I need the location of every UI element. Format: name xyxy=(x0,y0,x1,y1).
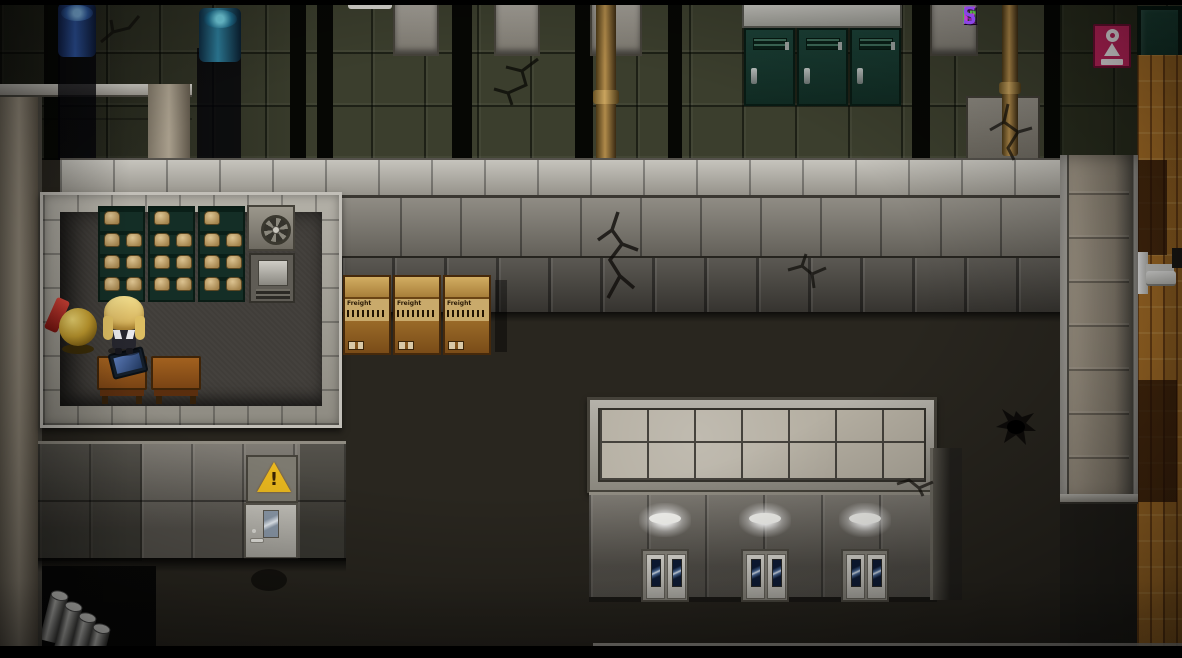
supply-sack xyxy=(226,233,242,247)
supply-sack xyxy=(204,233,220,247)
letterbox-bottom xyxy=(0,646,1182,658)
door-window xyxy=(872,559,882,587)
ac-unit xyxy=(247,205,295,251)
pipe-joint-1 xyxy=(593,90,619,104)
bl-door-window xyxy=(263,510,279,538)
crate-row[interactable]: FreightFreightFreight xyxy=(343,275,495,355)
desk-leg xyxy=(102,396,108,404)
double-door[interactable] xyxy=(841,549,889,602)
locker-latch xyxy=(785,42,789,50)
hall-gap-6 xyxy=(668,0,682,160)
hall-pillar xyxy=(148,84,190,160)
locker-top-shelf xyxy=(742,2,902,28)
drum-cap xyxy=(64,600,84,614)
ac-fan-hub xyxy=(272,226,280,234)
crate-label-text: Freight xyxy=(347,300,371,307)
locker-vent xyxy=(859,38,893,50)
crate-label: Freight xyxy=(345,299,389,321)
supply-sack xyxy=(176,255,192,269)
right-wall-seams xyxy=(1069,155,1129,503)
pipe-joint-2 xyxy=(999,82,1021,94)
restroom-sign-figure xyxy=(1104,43,1120,56)
crate-label: Freight xyxy=(395,299,439,321)
locker-latch xyxy=(891,42,895,50)
restroom-sign-band xyxy=(1101,59,1123,65)
fluorescent-light xyxy=(749,513,781,524)
supply-sack xyxy=(226,255,242,269)
sink-basin xyxy=(1146,271,1176,286)
supply-sack xyxy=(104,277,120,291)
sink[interactable] xyxy=(1138,248,1182,296)
door-window xyxy=(651,559,661,587)
door-window xyxy=(851,559,861,587)
crate-shadow xyxy=(495,280,507,352)
character-hair-left xyxy=(103,316,113,340)
supply-sack xyxy=(154,277,170,291)
door-window xyxy=(772,559,782,587)
left-wall xyxy=(0,97,42,646)
supply-sack xyxy=(104,255,120,269)
right-wall-cap xyxy=(1060,494,1138,504)
drum-cap xyxy=(78,611,98,625)
supply-sack xyxy=(126,255,142,269)
desk-top xyxy=(151,356,201,390)
locker[interactable] xyxy=(797,28,848,106)
right-lower-dark xyxy=(1060,504,1137,646)
freight-crate[interactable]: Freight xyxy=(343,275,391,355)
door-leaf xyxy=(746,554,765,599)
water-barrel-1-top xyxy=(61,5,93,21)
locker-bank[interactable] xyxy=(742,2,902,106)
locker-handle xyxy=(751,68,757,84)
supply-sack xyxy=(154,211,170,225)
storage-shelf[interactable] xyxy=(148,206,195,302)
hall-gap-7 xyxy=(912,0,930,160)
character-foot-right xyxy=(126,348,133,354)
hall-gap-2 xyxy=(290,0,306,160)
locker-handle xyxy=(857,68,863,84)
supply-sack xyxy=(204,277,220,291)
supply-sack xyxy=(126,233,142,247)
door-leaf xyxy=(767,554,786,599)
supply-sack xyxy=(154,255,170,269)
crate-barcode xyxy=(447,310,487,317)
barrel-shadow-1 xyxy=(58,40,96,160)
locker[interactable] xyxy=(744,28,795,106)
restroom-sign xyxy=(1093,24,1131,68)
crate-barcode xyxy=(347,310,387,317)
crate-markings xyxy=(398,341,414,350)
parquet-top xyxy=(1137,55,1182,160)
locker-vent xyxy=(753,38,787,50)
skylight-panes xyxy=(598,408,926,482)
wall-panel-1 xyxy=(393,0,439,56)
double-door[interactable] xyxy=(741,549,789,602)
gold-sphere-ball xyxy=(59,308,97,346)
freight-crate[interactable]: Freight xyxy=(393,275,441,355)
desk-2 xyxy=(151,356,201,404)
supply-sack xyxy=(104,233,120,247)
door-window xyxy=(672,559,682,587)
supply-sack xyxy=(126,277,142,291)
warning-mark: ! xyxy=(268,469,280,490)
desk-leg xyxy=(136,396,142,404)
crate-markings xyxy=(348,341,364,350)
hall-gap-4 xyxy=(452,0,472,160)
desk-leg xyxy=(156,396,162,404)
copper-pipe-1 xyxy=(596,0,616,174)
bl-door-peep xyxy=(252,529,256,533)
shelf-bank[interactable] xyxy=(98,206,248,302)
parquet-dark-2 xyxy=(1137,380,1177,502)
locker-vent xyxy=(806,38,840,50)
bl-wall: ! xyxy=(38,441,346,558)
crate-lid xyxy=(395,277,439,299)
sink-dark-box xyxy=(1172,248,1182,268)
door-leaf xyxy=(846,554,865,599)
barrel-shadow-2 xyxy=(197,48,241,160)
metal-cabinet-panel xyxy=(258,260,288,286)
bl-wall-dark-right xyxy=(300,444,346,561)
double-door[interactable] xyxy=(641,549,689,602)
door-leaf xyxy=(667,554,686,599)
metal-cabinet[interactable] xyxy=(249,253,295,303)
watermark: PORNY GAMES xyxy=(960,2,1182,30)
storage-shelf[interactable] xyxy=(98,206,145,302)
drum-cap xyxy=(92,622,112,636)
floor-hole xyxy=(992,403,1040,449)
fluorescent-light xyxy=(649,513,681,524)
door-window xyxy=(751,559,761,587)
watermark-letter: S xyxy=(960,2,979,30)
locker[interactable] xyxy=(850,28,901,106)
water-barrel-2-top xyxy=(203,10,237,28)
crate-label: Freight xyxy=(445,299,489,321)
hall-gap-3 xyxy=(317,0,333,160)
bl-wall-midline xyxy=(38,500,346,502)
desk-leg xyxy=(190,396,196,404)
north-wall-upper xyxy=(340,198,1062,256)
storage-shelf[interactable] xyxy=(198,206,245,302)
wall-panel-2 xyxy=(494,0,540,56)
crate-markings xyxy=(448,341,464,350)
player-character[interactable] xyxy=(102,296,146,356)
supply-sack xyxy=(204,211,220,225)
crate-label-text: Freight xyxy=(447,300,471,307)
game-viewport[interactable]: FreightFreightFreight ! xyxy=(0,0,1182,658)
character-foot-left xyxy=(115,348,122,354)
character-hair-right xyxy=(135,316,145,340)
crate-lid xyxy=(445,277,489,299)
supply-sack xyxy=(226,277,242,291)
warning-panel: ! xyxy=(246,455,298,503)
fluorescent-light xyxy=(849,513,881,524)
supply-sack xyxy=(204,255,220,269)
metal-cabinet-slats xyxy=(256,289,290,299)
east-column xyxy=(930,448,962,600)
drum-patch xyxy=(42,566,156,658)
door-leaf xyxy=(867,554,886,599)
drum-cap xyxy=(50,589,70,603)
supply-sack xyxy=(176,233,192,247)
bl-wall-dark-left xyxy=(38,444,142,561)
crate-barcode xyxy=(397,310,437,317)
bl-door-handle xyxy=(250,538,264,543)
supply-sack xyxy=(104,211,120,225)
gold-sphere[interactable] xyxy=(58,308,98,354)
south-wall xyxy=(589,492,937,602)
crate-label-text: Freight xyxy=(397,300,421,307)
locker-latch xyxy=(838,42,842,50)
bl-door[interactable] xyxy=(244,503,298,559)
locker-handle xyxy=(804,68,810,84)
crate-lid xyxy=(345,277,389,299)
skylight xyxy=(587,397,937,493)
supply-sack xyxy=(154,233,170,247)
restroom-sign-head xyxy=(1110,33,1115,38)
supply-sack xyxy=(176,277,192,291)
door-leaf xyxy=(646,554,665,599)
freight-crate[interactable]: Freight xyxy=(443,275,491,355)
parquet-dark-1 xyxy=(1137,160,1167,255)
